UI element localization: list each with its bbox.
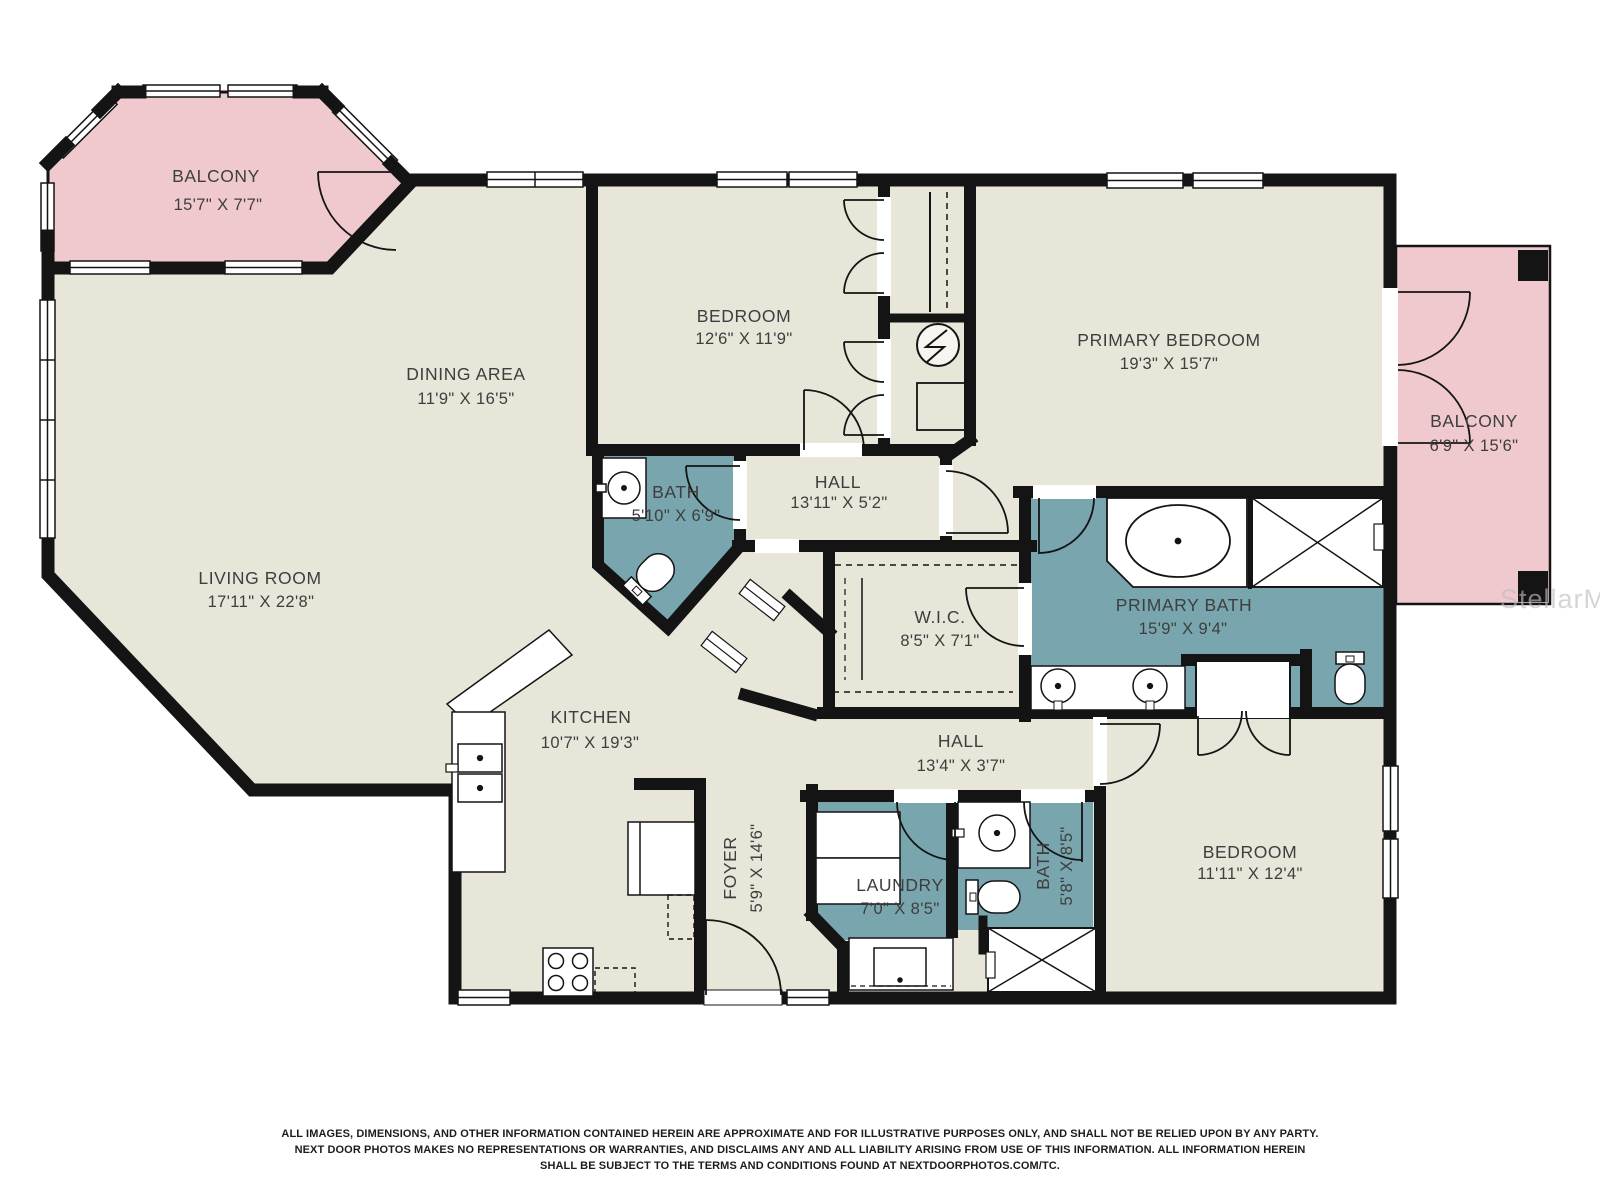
window-top-primary2 (1193, 173, 1263, 188)
window-top-bedroom (717, 172, 787, 187)
room-dims: 11'9" X 16'5" (417, 390, 514, 408)
window-bottom-kitchen (458, 990, 510, 1005)
room-name: BEDROOM (1203, 842, 1298, 862)
room-name: W.I.C. (914, 607, 965, 627)
room-dims: 13'4" X 3'7" (917, 757, 1006, 775)
stove-icon (543, 948, 593, 996)
room-name: BALCONY (1430, 411, 1518, 431)
room-dims: 17'11" X 22'8" (208, 593, 315, 611)
shower-icon (986, 928, 1096, 992)
room-name: LAUNDRY (856, 875, 944, 895)
room-dims: 15'7" X 7'7" (174, 196, 263, 214)
room-dims: 13'11" X 5'2" (790, 494, 887, 512)
room-name: BATH (652, 482, 700, 502)
window-left-living (40, 300, 55, 538)
bedroom-closet (1196, 662, 1290, 718)
window-balcony-top2 (228, 85, 297, 97)
room-name: HALL (938, 731, 984, 751)
disclaimer-line-2: NEXT DOOR PHOTOS MAKES NO REPRESENTATION… (295, 1144, 1306, 1156)
window-top-dining (487, 172, 583, 187)
room-name: KITCHEN (550, 707, 631, 727)
room-name: PRIMARY BATH (1116, 595, 1253, 615)
disclaimer-line-3: SHALL BE SUBJECT TO THE TERMS AND CONDIT… (540, 1160, 1060, 1172)
window-bottom-foyer (787, 990, 829, 1005)
room-dims: 5'8" X 8'5" (1058, 826, 1076, 905)
room-name: FOYER (720, 836, 740, 899)
room-dims: 6'9" X 15'6" (1430, 437, 1519, 455)
room-name: BEDROOM (697, 306, 792, 326)
room-dims: 10'7" X 19'3" (541, 734, 639, 752)
disclaimer-line-1: ALL IMAGES, DIMENSIONS, AND OTHER INFORM… (281, 1128, 1318, 1140)
room-dims: 8'5" X 7'1" (900, 632, 979, 650)
room-name: LIVING ROOM (198, 568, 321, 588)
shower-icon (1252, 498, 1384, 587)
room-name: HALL (815, 472, 861, 492)
disclaimer: ALL IMAGES, DIMENSIONS, AND OTHER INFORM… (281, 1128, 1318, 1172)
room-dims: 12'6" X 11'9" (695, 330, 792, 348)
room-dims: 5'9" X 14'6" (748, 824, 766, 913)
room-dims: 11'11" X 12'4" (1197, 865, 1303, 883)
bathtub-icon (1107, 498, 1247, 587)
fridge-icon (628, 822, 695, 895)
laundry-counter (849, 938, 953, 990)
room-name: BALCONY (172, 166, 260, 186)
window-balcony-top1 (143, 85, 220, 97)
window-balcony-bottom1 (70, 261, 150, 274)
watermark: StellarMLS (1500, 584, 1600, 614)
room-dims: 7'0" X 8'5" (860, 900, 939, 918)
water-heater-icon (917, 324, 959, 366)
toilet-icon (966, 880, 1020, 914)
floor-plan-drawing: BALCONY 15'7" X 7'7" DINING AREA 11'9" X… (0, 0, 1600, 1200)
window-top-bedroom2 (789, 172, 857, 187)
window-bedroom-right1 (1383, 766, 1398, 831)
room-name: PRIMARY BEDROOM (1077, 330, 1260, 350)
double-vanity (1031, 666, 1185, 710)
floor-plan-page: BALCONY 15'7" X 7'7" DINING AREA 11'9" X… (0, 0, 1600, 1200)
room-name: DINING AREA (406, 364, 525, 384)
room-dims: 19'3" X 15'7" (1120, 355, 1218, 373)
sink-icon (952, 802, 1030, 868)
balcony-right-post-top (1518, 250, 1548, 281)
window-balcony-bottom2 (225, 261, 302, 274)
toilet-icon (1335, 652, 1365, 704)
window-bedroom-right2 (1383, 839, 1398, 898)
room-name: BATH (1033, 842, 1053, 890)
room-dims: 15'9" X 9'4" (1139, 620, 1228, 638)
window-top-primary1 (1107, 173, 1183, 188)
room-dims: 5'10" X 6'9" (632, 507, 721, 525)
